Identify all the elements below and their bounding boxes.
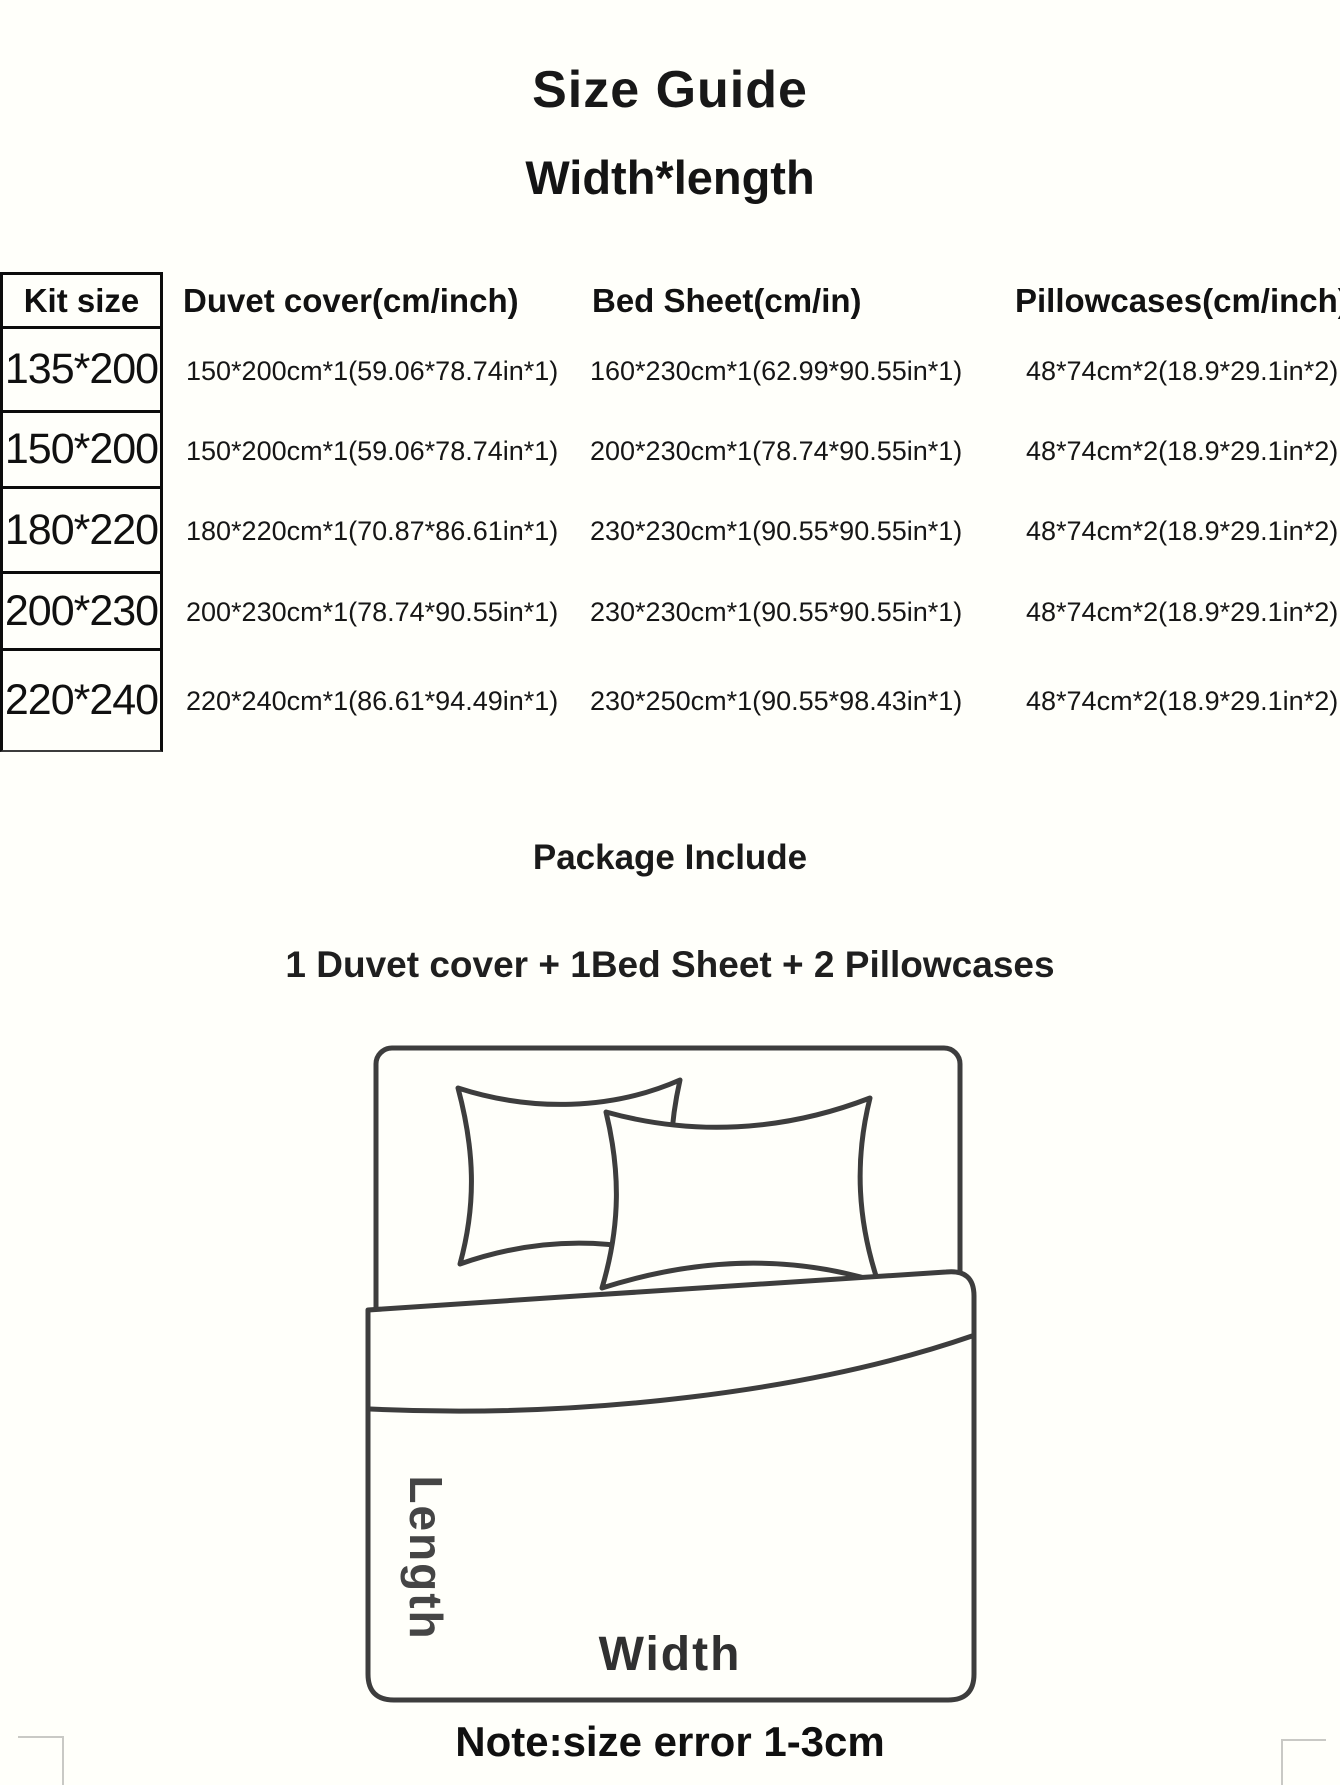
bed-set-diagram: Length Width [330, 1020, 1010, 1720]
corner-mark-bottom-left [18, 1736, 64, 1785]
size-guide-page: Size Guide Width*length Kit size Duvet c… [0, 0, 1340, 1785]
bed-sheet-cell: 230*230cm*1(90.55*90.55in*1) [586, 574, 1015, 651]
page-title: Size Guide [0, 60, 1340, 120]
column-header-duvet-cover: Duvet cover(cm/inch) [163, 272, 586, 329]
bed-sheet-cell: 160*230cm*1(62.99*90.55in*1) [586, 329, 1015, 413]
table-row: 180*220 180*220cm*1(70.87*86.61in*1) 230… [0, 489, 1340, 574]
corner-mark-bottom-right [1281, 1739, 1326, 1785]
pillowcases-cell: 48*74cm*2(18.9*29.1in*2) [1015, 329, 1340, 413]
bed-sheet-cell: 230*250cm*1(90.55*98.43in*1) [586, 651, 1015, 752]
table-row: 135*200 150*200cm*1(59.06*78.74in*1) 160… [0, 329, 1340, 413]
page-subtitle: Width*length [0, 150, 1340, 205]
table-header-row: Kit size Duvet cover(cm/inch) Bed Sheet(… [0, 272, 1340, 329]
size-error-note: Note:size error 1-3cm [0, 1718, 1340, 1766]
size-table: Kit size Duvet cover(cm/inch) Bed Sheet(… [0, 272, 1340, 752]
duvet-cover-cell: 220*240cm*1(86.61*94.49in*1) [163, 651, 586, 752]
kit-size-cell: 135*200 [0, 329, 163, 413]
pillowcases-cell: 48*74cm*2(18.9*29.1in*2) [1015, 651, 1340, 752]
width-label: Width [599, 1628, 742, 1681]
duvet-cover-cell: 150*200cm*1(59.06*78.74in*1) [163, 413, 586, 489]
pillowcases-cell: 48*74cm*2(18.9*29.1in*2) [1015, 574, 1340, 651]
kit-size-cell: 220*240 [0, 651, 163, 752]
bed-sheet-cell: 230*230cm*1(90.55*90.55in*1) [586, 489, 1015, 574]
kit-size-cell: 180*220 [0, 489, 163, 574]
package-contents-text: 1 Duvet cover + 1Bed Sheet + 2 Pillowcas… [0, 944, 1340, 986]
bed-sheet-cell: 200*230cm*1(78.74*90.55in*1) [586, 413, 1015, 489]
pillowcases-cell: 48*74cm*2(18.9*29.1in*2) [1015, 489, 1340, 574]
kit-size-cell: 150*200 [0, 413, 163, 489]
kit-size-cell: 200*230 [0, 574, 163, 651]
duvet-cover-cell: 150*200cm*1(59.06*78.74in*1) [163, 329, 586, 413]
package-include-heading: Package Include [0, 838, 1340, 878]
column-header-pillowcases: Pillowcases(cm/inch) [1015, 272, 1340, 329]
table-row: 200*230 200*230cm*1(78.74*90.55in*1) 230… [0, 574, 1340, 651]
duvet-cover-cell: 200*230cm*1(78.74*90.55in*1) [163, 574, 586, 651]
duvet-cover-cell: 180*220cm*1(70.87*86.61in*1) [163, 489, 586, 574]
table-row: 150*200 150*200cm*1(59.06*78.74in*1) 200… [0, 413, 1340, 489]
length-label: Length [400, 1475, 452, 1640]
pillow-right [602, 1098, 878, 1288]
column-header-kit-size: Kit size [0, 272, 163, 329]
table-row: 220*240 220*240cm*1(86.61*94.49in*1) 230… [0, 651, 1340, 752]
column-header-bed-sheet: Bed Sheet(cm/in) [586, 272, 1015, 329]
pillowcases-cell: 48*74cm*2(18.9*29.1in*2) [1015, 413, 1340, 489]
